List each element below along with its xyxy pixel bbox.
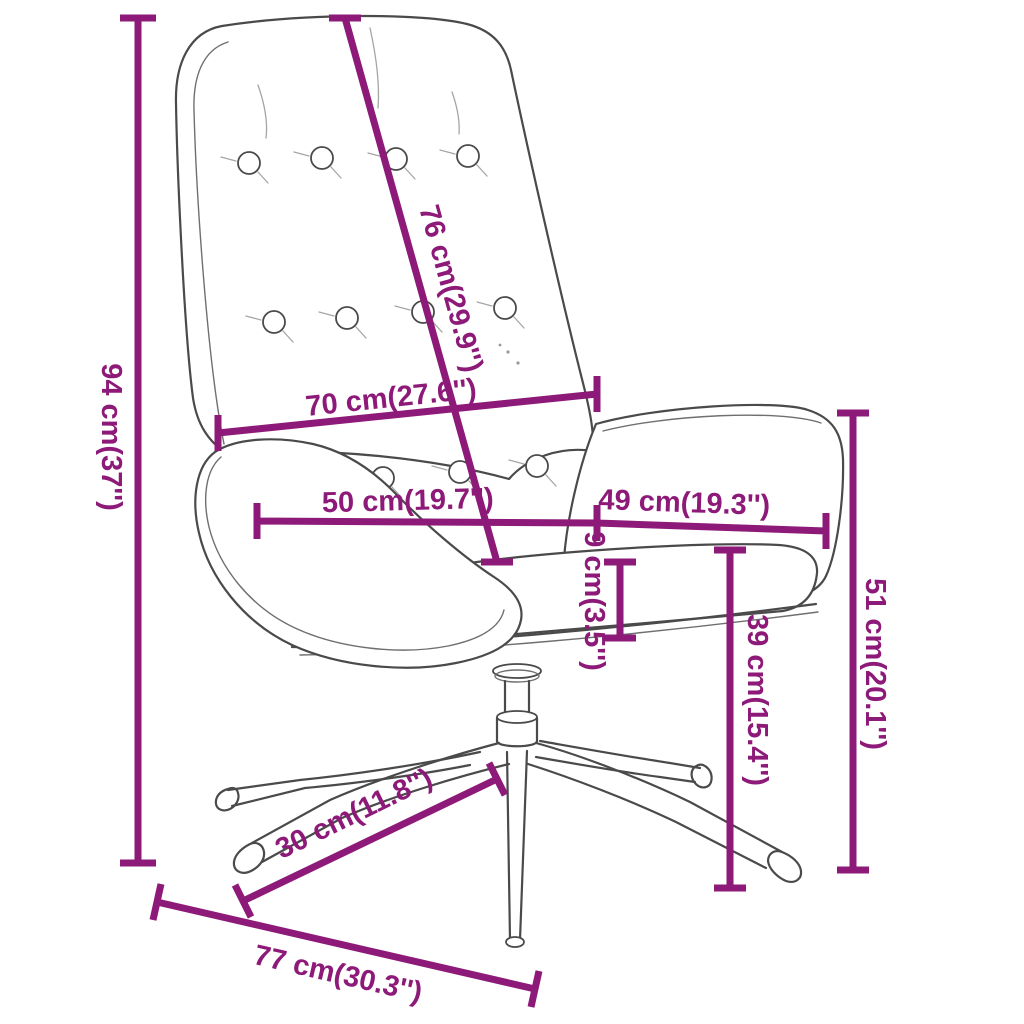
chair-fabric-speck — [499, 344, 502, 347]
chair-foot-back-right — [692, 765, 712, 788]
dimension-label: 77 cm(30.3'') — [251, 939, 426, 1009]
chair-foot-front-right — [768, 851, 801, 882]
chair-leg-back-right — [540, 741, 700, 768]
dimension-leg-length: 30 cm(11.8'') — [235, 762, 505, 917]
chair-leg-front-center — [507, 752, 510, 940]
diagram-canvas: 94 cm(37'') 76 cm(29.9'') 70 cm(27.6'') … — [0, 0, 1024, 1024]
chair-fabric-speck — [516, 361, 519, 364]
chair-column-collar-top — [497, 711, 537, 723]
chair-column-collar-bottom — [497, 741, 537, 746]
chair-drawing — [176, 16, 843, 947]
chair-foot-front-center — [506, 937, 524, 947]
chair-column-shaft — [505, 681, 529, 714]
product-dimension-diagram: 94 cm(37'') 76 cm(29.9'') 70 cm(27.6'') … — [0, 0, 1024, 1024]
chair-column-hub — [493, 664, 541, 678]
chair-foot-back-left — [216, 788, 239, 810]
chair-base — [216, 664, 801, 947]
dimension-back-height: 94 cm(37'') — [95, 18, 156, 863]
chair-leg-front-center-right — [520, 751, 527, 940]
dimension-label: 9 cm(3.5'') — [578, 531, 610, 671]
dimension-label: 94 cm(37'') — [95, 363, 127, 511]
dimension-base-width: 77 cm(30.3'') — [153, 884, 539, 1009]
dimension-armrest-height: 51 cm(20.1'') — [837, 413, 891, 870]
dimension-label: 49 cm(19.3'') — [598, 484, 771, 522]
chair-fabric-speck — [506, 350, 509, 353]
dimension-label: 50 cm(19.7'') — [321, 483, 494, 519]
chair-foot-front-left — [234, 843, 264, 873]
dimension-label: 39 cm(15.4'') — [741, 614, 773, 786]
dimension-label: 51 cm(20.1'') — [859, 578, 891, 750]
